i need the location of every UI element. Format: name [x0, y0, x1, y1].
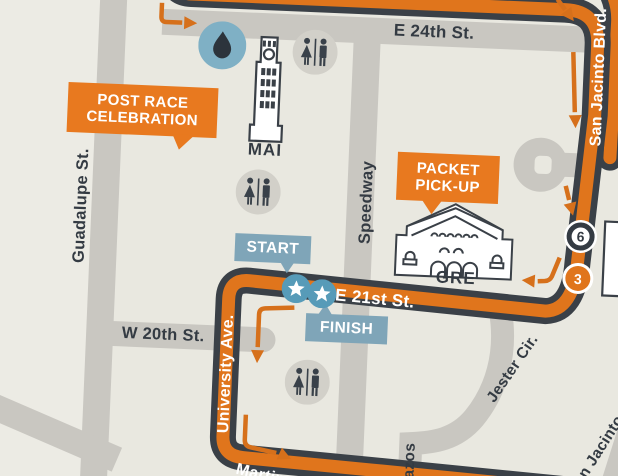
street-label-speedway: Speedway	[356, 161, 378, 245]
restroom-icon	[235, 169, 282, 216]
race-course-map: E 24th St. San Jacinto Blvd. Guadalupe S…	[0, 0, 618, 476]
arrow-turn-21st	[538, 257, 560, 282]
finish-callout: FINISH	[305, 313, 388, 344]
arrowhead-turn-21st	[521, 274, 535, 288]
building-label-gre: GRE	[435, 268, 476, 290]
finish-label: FINISH	[320, 319, 374, 338]
post-race-line2: CELEBRATION	[86, 108, 198, 130]
arrow-san-jacinto-short	[565, 186, 570, 200]
start-callout: START	[234, 233, 311, 264]
arrowhead-university	[251, 350, 265, 364]
post-race-celebration-callout: POST RACE CELEBRATION	[67, 82, 219, 138]
arrow-san-jacinto-long	[571, 52, 578, 112]
packet-line2: PICK-UP	[415, 177, 480, 197]
restroom-icon	[292, 29, 339, 76]
packet-pickup-callout: PACKET PICK-UP	[396, 152, 500, 204]
east-building-partial	[602, 222, 618, 299]
street-label-e-24th: E 24th St.	[393, 21, 474, 44]
building-label-mai: MAI	[247, 140, 282, 161]
cul-de-sac-island	[534, 156, 552, 175]
street-speedway	[332, 31, 381, 476]
street-label-w-20th: W 20th St.	[121, 324, 204, 346]
callout-pointer	[421, 200, 442, 215]
restroom-icon	[284, 359, 331, 406]
callout-pointer	[280, 262, 294, 274]
main-building-drawing	[249, 37, 285, 142]
start-label: START	[246, 239, 299, 258]
arrowhead-long-down	[569, 115, 582, 128]
water-stop-icon	[197, 20, 247, 70]
street-label-brazos: Brazos	[400, 442, 420, 476]
callout-pointer	[172, 134, 195, 150]
finish-star-icon	[307, 279, 337, 309]
map-canvas: E 24th St. San Jacinto Blvd. Guadalupe S…	[0, 0, 618, 476]
